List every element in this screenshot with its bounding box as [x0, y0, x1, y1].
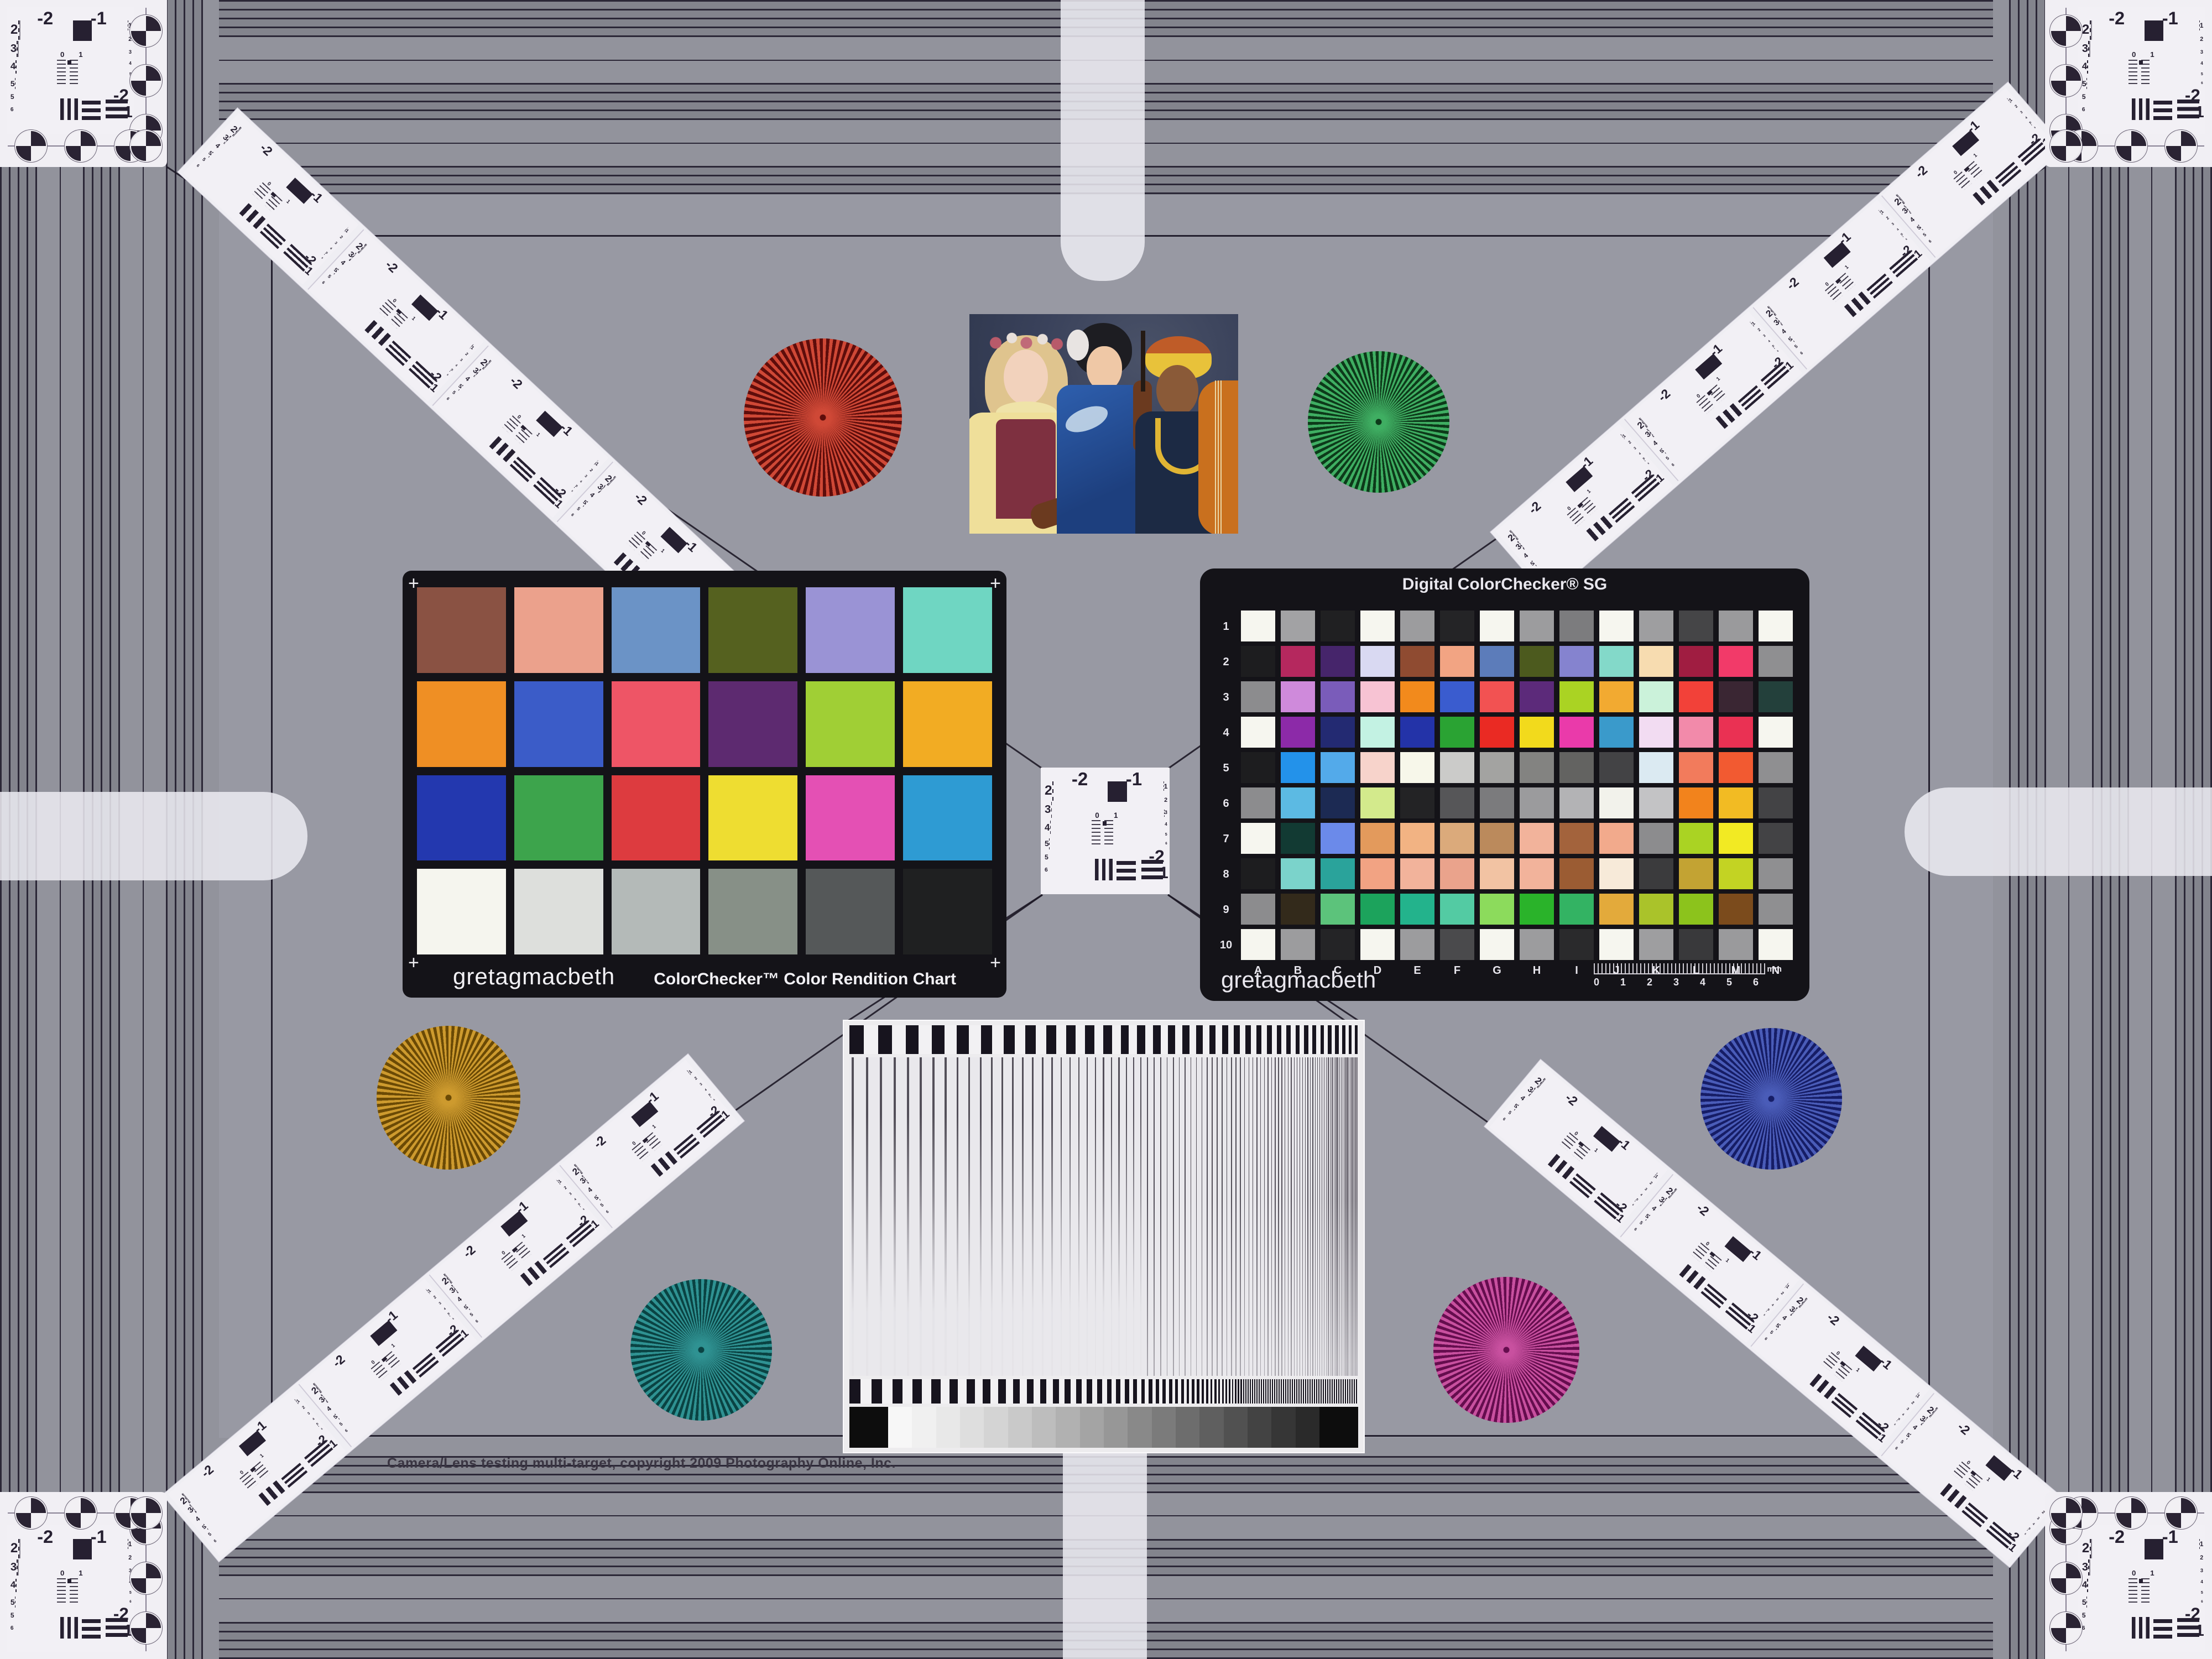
usaf-group-number: 6	[452, 1318, 455, 1321]
photo-left-woman-face	[1004, 349, 1048, 405]
usaf-group-number: 5	[2030, 122, 2032, 125]
usaf-group-number: 2	[1911, 1401, 1915, 1405]
bar-group-vertical	[19, 20, 20, 40]
usaf-center-one: 1	[535, 431, 541, 437]
sg-color-patch	[1281, 717, 1315, 748]
usaf-header-minus2: -2	[591, 1133, 609, 1152]
usaf-group-number: 2	[694, 1076, 698, 1081]
sg-color-patch	[1639, 858, 1673, 889]
color-patch	[708, 869, 797, 954]
sg-color-patch	[1321, 929, 1355, 960]
quadrant-registration-mark	[131, 16, 161, 46]
usaf-group-number: 2	[465, 352, 469, 356]
sweep-bar	[1340, 1379, 1342, 1404]
sweep-bar	[1156, 1379, 1159, 1404]
usaf-group-number: 5	[578, 1203, 581, 1207]
siemens-star-teal	[630, 1279, 772, 1421]
sg-column-label: F	[1440, 964, 1474, 977]
sweep-bar	[1225, 1379, 1227, 1404]
usaf-group-row: 4	[1780, 327, 1788, 336]
usaf-header-minus2: -2	[382, 257, 400, 276]
sg-color-patch	[1679, 858, 1713, 889]
usaf-resolution-chart: -2-1234556123456-2101	[1041, 768, 1170, 894]
sg-column-label: D	[1360, 964, 1395, 977]
corner-target-top-right: -2-1234556123456-2101	[2045, 0, 2212, 167]
usaf-group-row-small: 3	[699, 1082, 703, 1087]
usaf-group-row-small: 1	[2007, 97, 2013, 103]
usaf-micro-square	[67, 60, 71, 65]
usaf-group-number: 5	[1897, 1418, 1900, 1422]
sg-color-patch	[1639, 894, 1673, 925]
usaf-micro-bars	[1965, 161, 1984, 180]
usaf-group-number: 2	[2082, 1542, 2089, 1555]
wedge-step	[1248, 1407, 1271, 1448]
usaf-micro-bars	[644, 1132, 663, 1151]
usaf-micro-square	[2139, 60, 2143, 65]
usaf-group-number: 4	[1045, 823, 1050, 832]
usaf-center-one: 1	[259, 1453, 264, 1459]
sweep-bar	[1321, 1025, 1324, 1054]
usaf-group-row-small: 2	[1627, 440, 1632, 445]
frequency-sweep-chart	[844, 1021, 1364, 1452]
usaf-group-row: 4	[1651, 439, 1660, 448]
sweep-bar	[967, 1379, 975, 1404]
bar-group-vertical	[489, 436, 515, 462]
sweep-bar	[1285, 1379, 1286, 1404]
photo-middle-woman-flower	[1067, 330, 1089, 361]
usaf-group-row-small: 1	[1750, 320, 1756, 326]
usaf-group-row-small: 2	[301, 1405, 306, 1411]
usaf-bottom-one: 1	[2195, 1622, 2204, 1640]
sweep-bar	[1027, 1379, 1034, 1404]
usaf-group-row: 6	[195, 163, 200, 169]
bar-group-vertical	[1548, 1154, 1574, 1179]
bar-group-vertical	[18, 41, 18, 57]
sg-column-label: J	[1599, 964, 1634, 977]
sg-color-patch	[1360, 787, 1395, 818]
usaf-group-row: 5	[469, 1312, 475, 1318]
usaf-group-row: 5	[1793, 343, 1799, 349]
wedge-step	[1056, 1407, 1079, 1448]
sg-column-label: H	[1520, 964, 1554, 977]
sweep-bar	[1169, 1379, 1172, 1404]
bar-group-vertical	[1940, 1483, 1967, 1509]
usaf-header-minus2: -2	[460, 1243, 478, 1261]
sg-color-patch	[1480, 894, 1514, 925]
usaf-group-row-small: 3	[128, 49, 131, 56]
sg-column-label: N	[1759, 964, 1793, 977]
usaf-group-number: 3	[2082, 1562, 2088, 1573]
usaf-center-zero: 0	[2132, 1569, 2136, 1577]
sg-color-patch	[1759, 681, 1793, 712]
bar-group-horizontal	[1608, 498, 1635, 523]
usaf-group-number: 1	[128, 1541, 132, 1547]
color-patch	[806, 869, 895, 954]
sg-color-patch	[1241, 646, 1275, 677]
sg-color-patch	[1241, 611, 1275, 641]
sg-ruler-number: 5	[1726, 977, 1732, 988]
sweep-bar	[1267, 1025, 1272, 1054]
quadrant-registration-mark	[2116, 131, 2146, 161]
usaf-group-number: 5	[1045, 840, 1049, 848]
usaf-group-number: 6	[571, 490, 573, 493]
sweep-bar	[983, 1379, 990, 1404]
color-patch	[708, 775, 797, 861]
sweep-bar	[849, 1379, 860, 1404]
sg-color-patch	[1679, 646, 1713, 677]
usaf-group-number: 1	[687, 1069, 692, 1074]
sg-color-patch	[1520, 646, 1554, 677]
usaf-group-row-small: 5	[448, 1313, 451, 1317]
usaf-group-row: 5	[1787, 336, 1794, 343]
color-patch	[903, 869, 992, 954]
usaf-group-row-small: 4	[312, 1417, 316, 1422]
sweep-bar	[1349, 1025, 1352, 1054]
usaf-group-row-small: 5	[1901, 233, 1904, 237]
usaf-group-row-small: 1	[2199, 1539, 2203, 1548]
sweep-bar	[1053, 1379, 1059, 1404]
usaf-group-row-small: 2	[1648, 1180, 1653, 1186]
usaf-group-number: 6	[1905, 238, 1908, 241]
bar-group-vertical	[2132, 98, 2150, 120]
sg-column-label: L	[1679, 964, 1713, 977]
usaf-group-number: 1	[427, 1288, 432, 1293]
usaf-group-row-small: 6	[570, 490, 573, 493]
sweep-bar	[1298, 1379, 1300, 1404]
usaf-group-number: 5	[450, 369, 453, 372]
usaf-group-row-small: 3	[1164, 810, 1167, 817]
usaf-micro-bars	[1092, 820, 1100, 844]
sg-column-label: K	[1639, 964, 1673, 977]
sweep-bar	[1279, 1379, 1280, 1404]
usaf-center-one: 1	[390, 1343, 395, 1349]
sg-color-patch	[1599, 681, 1634, 712]
usaf-group-number: 1	[1879, 209, 1884, 215]
usaf-group-row-small: 3	[128, 1567, 131, 1574]
usaf-header-minus2: -2	[37, 1526, 53, 1547]
sg-row-label: 1	[1217, 620, 1235, 633]
usaf-micro-bars	[2128, 60, 2137, 84]
usaf-group-number: 4	[11, 1580, 15, 1590]
sweep-bar	[950, 1379, 958, 1404]
usaf-black-square	[1108, 781, 1127, 802]
sweep-bar	[1085, 1025, 1094, 1054]
usaf-group-row-small: 1	[1621, 433, 1627, 439]
sg-color-patch	[1599, 787, 1634, 818]
usaf-group-number: 1	[2200, 1541, 2204, 1547]
usaf-group-number: 5	[2027, 1528, 2030, 1531]
sample-photo-three-musicians	[969, 314, 1238, 534]
usaf-group-row: 5	[201, 1524, 208, 1531]
usaf-group-row: 3	[2082, 41, 2088, 57]
sg-color-patch	[1321, 823, 1355, 854]
sg-column-label: A	[1241, 964, 1275, 977]
usaf-header-minus2: -2	[632, 490, 650, 509]
usaf-center-one: 1	[1114, 811, 1118, 820]
sg-color-patch	[1759, 752, 1793, 783]
usaf-group-row: 6	[344, 1428, 349, 1434]
sweep-bar	[1168, 1025, 1175, 1054]
usaf-center-one: 1	[660, 547, 666, 554]
usaf-group-row: 4	[2082, 60, 2087, 74]
usaf-header-minus2: -2	[1784, 274, 1802, 293]
usaf-resolution-chart: -2-1234556123456-2101	[2078, 7, 2205, 134]
usaf-group-row-small: 5	[574, 485, 577, 489]
usaf-header-minus2: -2	[37, 8, 53, 29]
sweep-bar	[1334, 1379, 1335, 1404]
usaf-group-row-small: 6	[452, 1317, 455, 1321]
usaf-group-number: 1	[557, 1178, 562, 1184]
sweep-bar	[1272, 1379, 1273, 1404]
sweep-bar	[1352, 1379, 1353, 1404]
sg-color-patch	[1281, 752, 1315, 783]
sg-color-patch	[1281, 787, 1315, 818]
corner-target-top-left: -2-1234556123456-2101	[0, 0, 167, 167]
sweep-bar	[1192, 1379, 1194, 1404]
sweep-bar	[1087, 1379, 1092, 1404]
usaf-group-number: 3	[2082, 43, 2088, 54]
bar-group-horizontal	[1961, 1502, 1988, 1527]
bar-group-horizontal	[1117, 861, 1136, 880]
usaf-black-square	[2145, 1539, 2164, 1559]
usaf-group-row: 4	[11, 1579, 15, 1592]
usaf-resolution-chart: -2-1234556123456-2101	[7, 1525, 134, 1652]
usaf-group-row: 2	[602, 472, 614, 485]
sweep-bar	[1211, 1379, 1213, 1404]
color-patch	[903, 775, 992, 861]
bar-group-horizontal	[82, 1619, 101, 1639]
usaf-center-one: 1	[1855, 1367, 1861, 1373]
siemens-star-red	[744, 338, 902, 497]
bar-group-vertical	[651, 1151, 677, 1177]
usaf-group-row: 6	[1633, 1227, 1638, 1232]
usaf-group-row-small: 4	[1770, 1303, 1774, 1308]
usaf-center-one: 1	[79, 1569, 82, 1577]
sweep-bar	[1107, 1379, 1112, 1404]
usaf-group-row-small: 3	[306, 1412, 311, 1417]
usaf-group-number: 1	[470, 345, 475, 350]
usaf-group-row: 3	[317, 1395, 327, 1405]
usaf-group-row: 2	[2082, 1539, 2089, 1558]
sg-color-patch	[1281, 681, 1315, 712]
usaf-group-number: 4	[574, 1198, 577, 1202]
sg-color-patch	[1639, 929, 1673, 960]
usaf-header-minus2: -2	[1824, 1310, 1842, 1329]
sweep-bar	[1040, 1379, 1046, 1404]
wedge-step	[984, 1407, 1008, 1448]
usaf-group-row-small: 4	[1639, 1193, 1642, 1198]
wedge-step	[912, 1407, 936, 1448]
usaf-group-number: 2	[128, 1555, 132, 1561]
sg-color-patch	[1679, 894, 1713, 925]
usaf-group-row-small: 5	[316, 1423, 320, 1427]
sweep-bar	[1310, 1379, 1311, 1404]
usaf-group-row-small: 2	[338, 234, 344, 240]
sweep-bar	[1277, 1025, 1282, 1054]
usaf-group-row-small: 2	[2013, 104, 2019, 109]
sg-color-patch	[1719, 717, 1753, 748]
classic-reg-mark: +	[990, 574, 1001, 593]
usaf-group-row-small: 6	[1647, 462, 1650, 466]
sg-column-label: C	[1321, 964, 1355, 977]
colorchecker-classic-chart: + + + + gretagmacbeth ColorChecker™ Colo…	[403, 571, 1006, 998]
usaf-group-number: 2	[2200, 1555, 2203, 1561]
sweep-bar	[1137, 1025, 1145, 1054]
sg-color-patch	[1400, 823, 1434, 854]
usaf-group-row: 2	[11, 1539, 18, 1558]
usaf-group-row-small: 6	[2201, 81, 2203, 86]
usaf-group-number: 4	[2200, 61, 2203, 66]
sg-ruler-number: 2	[1647, 977, 1652, 988]
usaf-header-minus2: -2	[2109, 1526, 2125, 1547]
usaf-group-row: 4	[2082, 1579, 2087, 1592]
usaf-group-row: 5	[1045, 852, 1048, 862]
usaf-group-row-small: 1	[469, 344, 476, 350]
usaf-group-row: 5	[11, 92, 14, 101]
sg-color-patch	[1559, 717, 1594, 748]
usaf-group-row-small: 5	[324, 252, 327, 256]
usaf-group-row-small: 6	[1165, 842, 1167, 847]
sg-color-patch	[1679, 752, 1713, 783]
quadrant-registration-mark	[16, 1498, 46, 1528]
usaf-group-row-small: 1	[556, 1178, 562, 1185]
bar-group-vertical	[60, 98, 78, 120]
usaf-group-row: 6	[321, 280, 326, 285]
usaf-group-row: 6	[1764, 1336, 1768, 1342]
usaf-resolution-chart: -2-1234556123456-2101	[2078, 1525, 2205, 1652]
sg-color-patch	[1281, 646, 1315, 677]
sg-color-patch	[1520, 611, 1554, 641]
color-patch	[514, 775, 603, 861]
usaf-group-row: 3	[470, 366, 481, 376]
bar-group-vertical	[2089, 1559, 2090, 1575]
sg-color-patch	[1520, 681, 1554, 712]
wedge-step	[1199, 1407, 1223, 1448]
bar-group-horizontal	[260, 223, 286, 249]
sweep-bar	[849, 1025, 864, 1054]
usaf-group-number: 5	[129, 72, 132, 76]
sg-color-patch	[1400, 717, 1434, 748]
sweep-bar	[1294, 1379, 1295, 1404]
color-patch	[514, 681, 603, 767]
sweep-bar	[878, 1025, 892, 1054]
registration-tab-top	[1061, 0, 1145, 281]
usaf-center-cluster: 01	[55, 55, 88, 88]
sg-title-text: Digital ColorChecker® SG	[1200, 575, 1809, 594]
sweep-bar	[1066, 1025, 1076, 1054]
sweep-bar	[1206, 1379, 1208, 1404]
sg-color-patch	[1440, 717, 1474, 748]
usaf-group-row-small: 4	[443, 1307, 447, 1312]
quadrant-registration-mark	[131, 1563, 161, 1593]
bar-group-vertical	[2091, 1539, 2092, 1558]
sweep-bar	[1065, 1379, 1070, 1404]
color-patch	[806, 681, 895, 767]
sg-color-patch	[1480, 858, 1514, 889]
sweep-bar	[1263, 1379, 1264, 1404]
usaf-group-number: 6	[1777, 350, 1780, 353]
sg-color-patch	[1520, 858, 1554, 889]
usaf-center-one: 1	[1973, 152, 1978, 158]
usaf-group-row: 4	[1780, 1313, 1788, 1322]
usaf-group-row-small: 1	[1915, 1392, 1921, 1399]
bar-group-horizontal	[1995, 161, 2021, 187]
sg-color-patch	[1281, 894, 1315, 925]
usaf-group-row-small: 6	[446, 373, 449, 377]
bar-group-vertical	[1679, 1264, 1706, 1290]
usaf-group-row-small: 1	[344, 227, 350, 233]
usaf-group-number: 2	[1627, 440, 1632, 445]
sweep-bar	[1235, 1379, 1237, 1404]
sweep-bar	[932, 1025, 945, 1054]
sweep-bar-strip-bottom	[849, 1379, 1358, 1404]
registration-tab-left	[0, 792, 307, 880]
colorchecker-patch-grid	[417, 587, 992, 954]
sweep-pattern	[849, 1057, 1358, 1376]
color-patch	[417, 775, 506, 861]
sg-column-label: I	[1559, 964, 1594, 977]
usaf-group-number: 3	[307, 1412, 311, 1416]
usaf-group-row-small: 6	[1631, 1203, 1634, 1207]
usaf-group-number: 1	[1786, 1284, 1791, 1290]
usaf-group-number: 3	[1165, 810, 1167, 815]
usaf-group-row-small: 3	[1775, 1297, 1779, 1302]
usaf-group-number: 2	[1045, 784, 1052, 797]
usaf-group-row-small: 5	[1772, 345, 1776, 349]
usaf-micro-bars	[1579, 497, 1598, 516]
color-patch	[708, 681, 797, 767]
usaf-group-row-small: 4	[573, 1198, 577, 1202]
usaf-group-row-small: 4	[1896, 228, 1900, 232]
sg-color-patch	[1679, 823, 1713, 854]
sg-color-patch	[1520, 717, 1554, 748]
sweep-bar	[1354, 1379, 1355, 1404]
sg-row-label: 2	[1217, 656, 1235, 669]
usaf-group-number: 3	[2200, 1568, 2203, 1573]
usaf-group-number: 6	[2034, 127, 2037, 129]
sg-color-patch	[1480, 611, 1514, 641]
usaf-header-minus2: -2	[199, 1462, 217, 1481]
usaf-resolution-chart: -2-1234556123456-2101	[7, 7, 134, 134]
sweep-bar	[1187, 1379, 1190, 1404]
color-patch	[417, 587, 506, 673]
usaf-group-row-small: 5	[2030, 122, 2033, 126]
sg-color-patch	[1321, 611, 1355, 641]
sg-color-patch	[1559, 681, 1594, 712]
usaf-group-number: 5	[1773, 345, 1776, 348]
usaf-group-row-small: 2	[1885, 216, 1891, 221]
sweep-bar	[1121, 1025, 1129, 1054]
sg-row-label: 4	[1217, 727, 1235, 739]
sg-color-patch	[1679, 681, 1713, 712]
bar-group-vertical	[1586, 515, 1613, 541]
usaf-group-row-small: 5	[1643, 457, 1646, 461]
sg-color-patch	[1679, 929, 1713, 960]
usaf-group-number: 3	[2020, 111, 2024, 114]
usaf-group-row-small: 4	[454, 364, 458, 368]
usaf-center-one: 1	[1715, 375, 1721, 382]
usaf-center-cluster: 01	[55, 1573, 88, 1606]
sg-color-patch	[1559, 646, 1594, 677]
usaf-header-minus2: -2	[257, 140, 275, 159]
sweep-bar	[1097, 1379, 1102, 1404]
usaf-group-row: 6	[213, 1538, 218, 1544]
color-patch	[612, 681, 701, 767]
usaf-header-minus1: -1	[2162, 1526, 2178, 1547]
sweep-bar	[1162, 1379, 1166, 1404]
center-usaf-target: -2-1234556123456-2101	[1041, 768, 1170, 894]
usaf-header-minus1: -1	[1126, 769, 1142, 790]
